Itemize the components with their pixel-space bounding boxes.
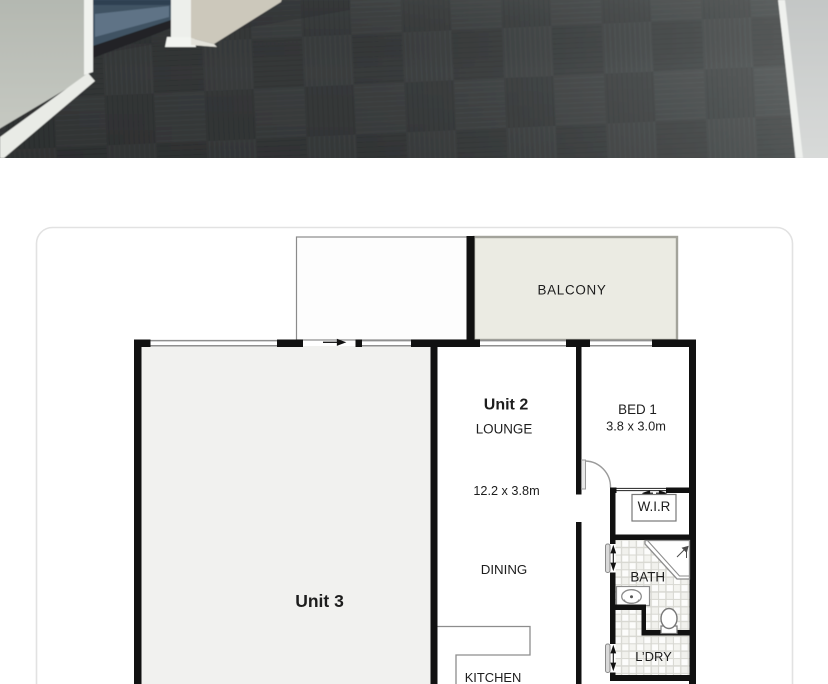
svg-text:W.I.R: W.I.R bbox=[638, 499, 671, 514]
svg-text:DINING: DINING bbox=[481, 562, 528, 577]
svg-text:KITCHEN: KITCHEN bbox=[465, 670, 522, 684]
svg-text:Unit 2: Unit 2 bbox=[484, 397, 529, 414]
svg-text:LOUNGE: LOUNGE bbox=[476, 422, 533, 437]
svg-text:BED 1: BED 1 bbox=[618, 402, 657, 417]
svg-text:3.8 x 3.0m: 3.8 x 3.0m bbox=[606, 419, 666, 434]
svg-text:Unit 3: Unit 3 bbox=[295, 591, 344, 611]
svg-text:L’DRY: L’DRY bbox=[635, 649, 672, 664]
svg-text:12.2 x 3.8m: 12.2 x 3.8m bbox=[473, 484, 539, 498]
svg-text:BATH: BATH bbox=[630, 570, 665, 585]
svg-text:BALCONY: BALCONY bbox=[538, 283, 607, 298]
